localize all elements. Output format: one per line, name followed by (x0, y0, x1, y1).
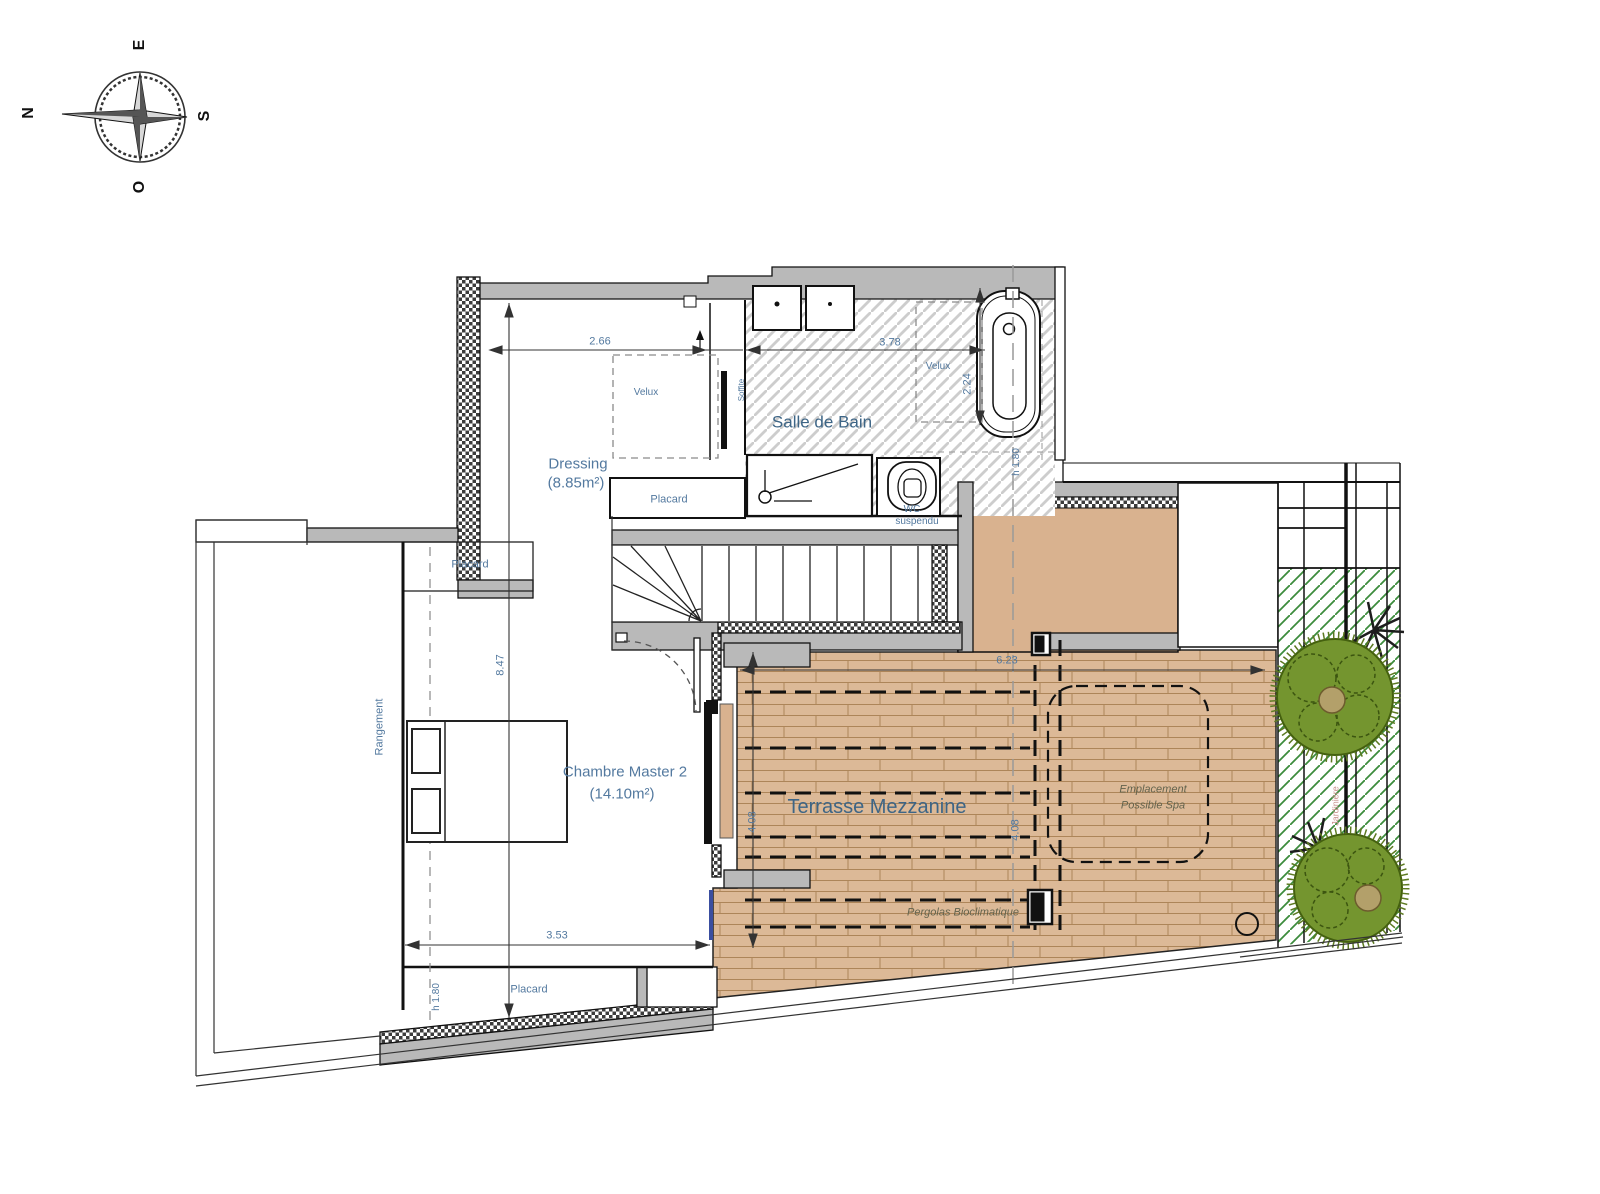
room-label-chambre: Chambre Master 2 (563, 765, 687, 780)
dimension-terrasse-depth2: 4.08 (1011, 819, 1022, 840)
floor-plan-drawing (0, 0, 1600, 1194)
bed (407, 721, 567, 842)
annotation-wc: WC (904, 505, 921, 515)
dimension-terrasse-width: 6.23 (996, 656, 1017, 667)
room-label-rangement: Rangement (375, 699, 386, 756)
compass-rose (62, 72, 187, 162)
compass-letter-s: S (200, 108, 211, 124)
annotation-spa-line1: Emplacement (1119, 785, 1186, 796)
room-label-salle-de-bain: Salle de Bain (772, 414, 872, 431)
annotation-h180-bas: h 1.80 (432, 983, 442, 1011)
floor-plan-page: E S O N Salle de Bain Dressing (8.85m²) … (0, 0, 1600, 1194)
compass-letter-e: E (135, 37, 146, 53)
dimension-velux-depth: 2.24 (963, 373, 974, 394)
shower (747, 455, 872, 516)
dimension-dressing-width: 2.66 (589, 337, 610, 348)
annotation-spa-line2: Possible Spa (1121, 801, 1185, 812)
compass-letter-o: O (134, 179, 146, 195)
room-label-terrasse: Terrasse Mezzanine (788, 797, 967, 817)
room-area-dressing: (8.85m²) (548, 476, 605, 491)
annotation-placard-bas: Placard (510, 985, 547, 996)
door-swing-arc (624, 641, 696, 712)
annotation-wc-suspendu: suspendu (895, 517, 938, 527)
terrace-deck (713, 650, 1276, 998)
annotation-velux-dressing: Velux (634, 388, 658, 398)
annotation-soffite: Soffite (738, 379, 746, 402)
annotation-placard-haut: Placard (451, 560, 488, 571)
annotation-h180-bain: h 1.80 (1012, 448, 1022, 476)
dimension-bain-width: 3.78 (879, 338, 900, 349)
annotation-placard-dressing: Placard (650, 495, 687, 506)
window-glass (709, 890, 713, 940)
room-label-dressing: Dressing (548, 457, 607, 472)
sliding-door-bath (721, 371, 727, 449)
compass-letter-n: N (23, 105, 35, 121)
annotation-velux-bain: Velux (926, 362, 950, 372)
room-area-chambre: (14.10m²) (589, 787, 654, 802)
dimension-terrasse-depth: 4.08 (748, 811, 759, 832)
dimension-chambre-length: 8.47 (496, 654, 507, 675)
nightstand (412, 789, 440, 833)
stairs (612, 545, 932, 622)
dimension-chambre-width: 3.53 (546, 931, 567, 942)
bathtub (977, 288, 1040, 437)
nightstand (412, 729, 440, 773)
room-label-jardiniere: Jardinière (1332, 786, 1341, 826)
terrace-sliding-door (704, 702, 712, 844)
velux-dressing-outline (613, 355, 718, 458)
annotation-pergola: Pergolas Bioclimatique (907, 908, 1019, 919)
